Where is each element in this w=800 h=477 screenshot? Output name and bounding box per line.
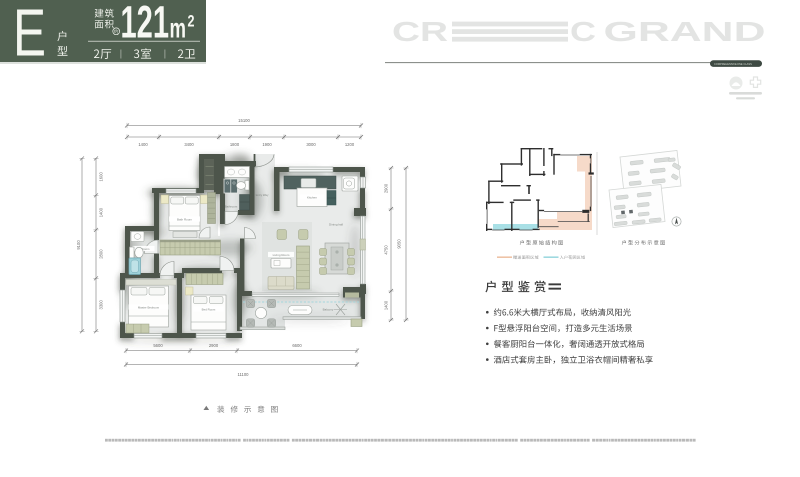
- svg-text:Dining hall: Dining hall: [329, 223, 343, 227]
- svg-text:GRAND: GRAND: [604, 16, 766, 47]
- svg-text:1400: 1400: [384, 300, 389, 310]
- svg-text:ONE CLASS: ONE CLASS: [737, 62, 752, 66]
- svg-text:1800: 1800: [230, 142, 240, 147]
- svg-text:9100: 9100: [76, 240, 81, 250]
- svg-text:C: C: [570, 16, 596, 47]
- svg-text:Bath Room: Bath Room: [177, 217, 193, 221]
- svg-text:COMPREHENSIVE: COMPREHENSIVE: [714, 62, 737, 66]
- svg-text:Entry Way: Entry Way: [256, 193, 269, 197]
- svg-text:1600: 1600: [99, 172, 104, 182]
- svg-text:Master Bedroom: Master Bedroom: [138, 305, 160, 309]
- svg-text:2800: 2800: [99, 249, 104, 259]
- svg-text:Bathroom: Bathroom: [225, 205, 238, 209]
- svg-text:1200: 1200: [345, 142, 355, 147]
- svg-text:5600: 5600: [153, 343, 163, 348]
- svg-text:Balcony: Balcony: [323, 308, 334, 312]
- svg-text:3000: 3000: [306, 142, 316, 147]
- svg-text:Kitchen: Kitchen: [307, 195, 317, 199]
- svg-text:Living Room: Living Room: [273, 253, 290, 257]
- svg-text:6600: 6600: [292, 343, 302, 348]
- svg-text:2900: 2900: [384, 183, 389, 193]
- svg-text:1400: 1400: [138, 142, 148, 147]
- svg-text:1400: 1400: [99, 207, 104, 217]
- svg-text:Bed Room: Bed Room: [202, 307, 216, 311]
- svg-text:2900: 2900: [209, 343, 219, 348]
- svg-text:2: 2: [188, 13, 195, 31]
- svg-text:m: m: [170, 13, 187, 44]
- svg-text:E: E: [13, 0, 46, 71]
- svg-text:15100: 15100: [238, 118, 250, 123]
- svg-text:3400: 3400: [184, 142, 194, 147]
- svg-text:121: 121: [121, 0, 170, 48]
- svg-text:11100: 11100: [237, 372, 249, 377]
- svg-text:CR: CR: [392, 16, 448, 47]
- svg-text:4750: 4750: [384, 245, 389, 255]
- svg-text:3300: 3300: [99, 299, 104, 309]
- svg-text:9050: 9050: [397, 239, 402, 249]
- svg-text:1900: 1900: [262, 142, 272, 147]
